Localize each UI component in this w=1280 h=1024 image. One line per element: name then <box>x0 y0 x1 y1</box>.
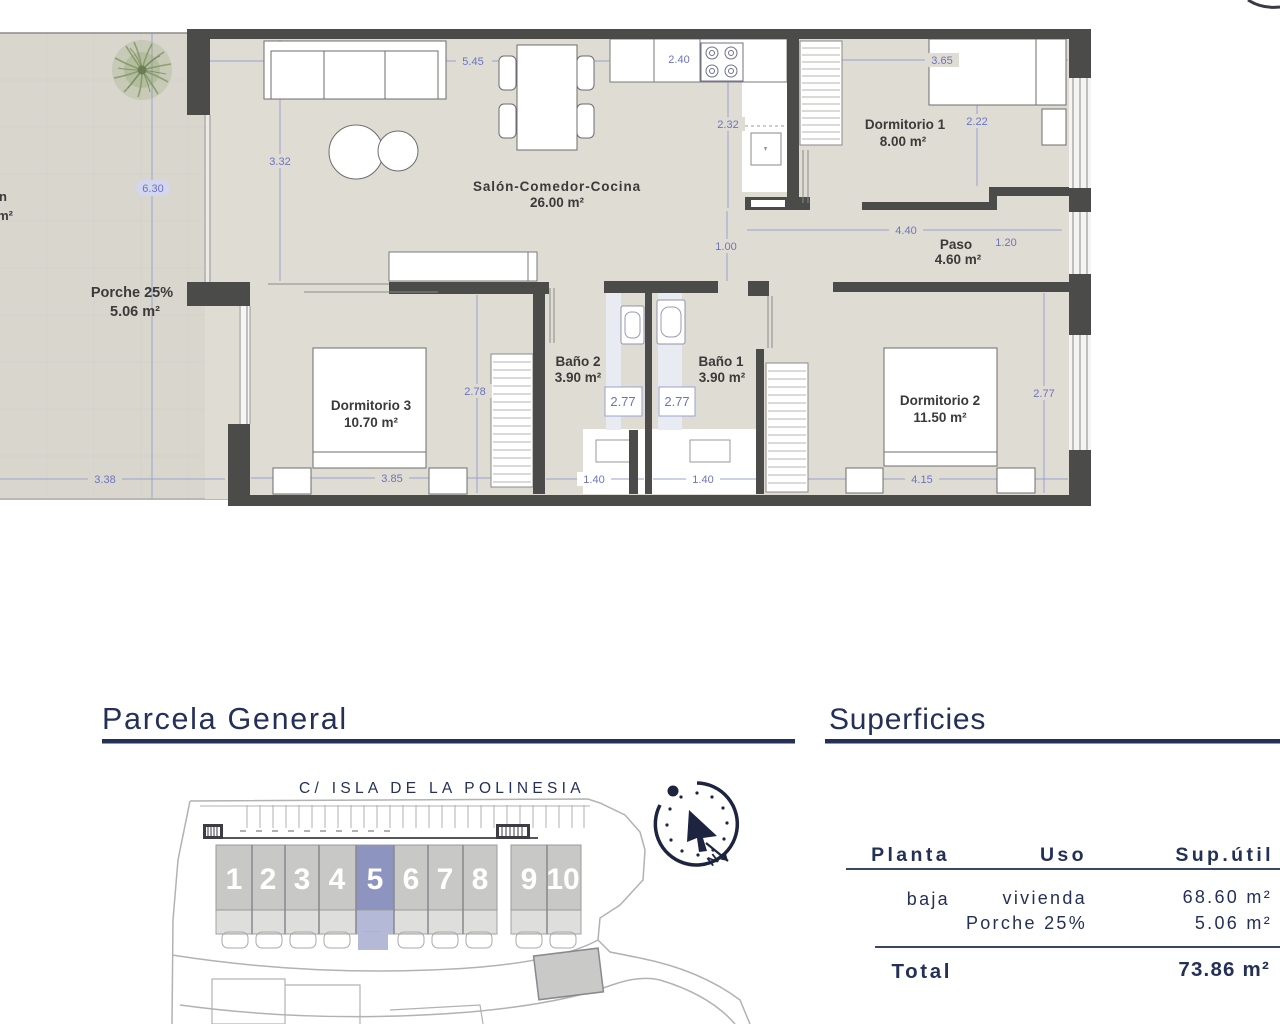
svg-text:4.15: 4.15 <box>911 474 932 486</box>
svg-text:2.77: 2.77 <box>664 394 689 409</box>
svg-text:5: 5 <box>367 863 384 896</box>
svg-text:2.78: 2.78 <box>464 386 485 398</box>
svg-text:5.45: 5.45 <box>462 56 483 68</box>
svg-text:6: 6 <box>403 863 420 896</box>
svg-text:Jardín: Jardín <box>0 189 7 204</box>
svg-text:Salón-Comedor-Cocina: Salón-Comedor-Cocina <box>473 179 641 194</box>
svg-text:4: 4 <box>329 863 346 896</box>
svg-text:2.40: 2.40 <box>668 54 689 66</box>
svg-text:2.77: 2.77 <box>1033 388 1054 400</box>
svg-text:Paso: Paso <box>940 237 972 252</box>
svg-text:6.30: 6.30 <box>142 183 163 195</box>
svg-text:10.70 m²: 10.70 m² <box>344 415 399 430</box>
svg-text:Baño 1: Baño 1 <box>698 354 744 369</box>
svg-text:2.32: 2.32 <box>717 119 738 131</box>
svg-text:3.32: 3.32 <box>269 156 290 168</box>
svg-text:Dormitorio 3: Dormitorio 3 <box>331 398 412 413</box>
svg-text:1.40: 1.40 <box>583 474 604 486</box>
svg-text:26.00 m²: 26.00 m² <box>530 195 585 210</box>
svg-text:1: 1 <box>226 863 243 896</box>
svg-text:3.85: 3.85 <box>381 473 402 485</box>
svg-text:3: 3 <box>294 863 311 896</box>
svg-text:68.60 m²: 68.60 m² <box>1183 887 1272 907</box>
svg-text:3.90 m²: 3.90 m² <box>699 370 746 385</box>
svg-text:vivienda: vivienda <box>1003 888 1087 908</box>
svg-text:C/ ISLA DE LA POLINESIA: C/ ISLA DE LA POLINESIA <box>299 780 585 797</box>
svg-text:3.38: 3.38 <box>94 474 115 486</box>
svg-text:8: 8 <box>472 863 489 896</box>
svg-text:baja: baja <box>907 889 950 909</box>
svg-text:73.86 m²: 73.86 m² <box>1178 958 1270 981</box>
svg-text:Total: Total <box>892 960 952 983</box>
svg-text:Dormitorio 2: Dormitorio 2 <box>900 393 980 408</box>
svg-text:2: 2 <box>260 863 277 896</box>
svg-text:5 m²: 5 m² <box>0 208 14 223</box>
svg-text:Porche 25%: Porche 25% <box>966 913 1087 933</box>
svg-text:Parcela General: Parcela General <box>102 702 348 736</box>
svg-text:Dormitorio 1: Dormitorio 1 <box>865 117 946 132</box>
svg-text:1.00: 1.00 <box>715 241 736 253</box>
svg-text:1.40: 1.40 <box>692 474 713 486</box>
svg-text:2.77: 2.77 <box>610 394 635 409</box>
svg-text:9: 9 <box>521 863 538 896</box>
svg-text:Superficies: Superficies <box>829 703 986 736</box>
svg-text:3.65: 3.65 <box>931 55 952 67</box>
svg-text:4.40: 4.40 <box>895 225 916 237</box>
svg-text:3.90 m²: 3.90 m² <box>555 370 602 385</box>
svg-text:7: 7 <box>437 863 454 896</box>
svg-text:5.06 m²: 5.06 m² <box>1195 913 1272 933</box>
svg-text:10: 10 <box>546 863 579 896</box>
svg-text:5.06 m²: 5.06 m² <box>110 304 160 320</box>
svg-text:4.60 m²: 4.60 m² <box>935 252 982 267</box>
svg-text:2.22: 2.22 <box>966 116 987 128</box>
svg-text:8.00 m²: 8.00 m² <box>880 134 927 149</box>
svg-text:Porche 25%: Porche 25% <box>91 285 173 301</box>
svg-text:Uso: Uso <box>1040 844 1087 866</box>
svg-text:Sup.útil: Sup.útil <box>1175 844 1274 866</box>
svg-text:Planta: Planta <box>871 844 950 866</box>
svg-text:Baño 2: Baño 2 <box>555 354 600 369</box>
svg-text:1.20: 1.20 <box>995 237 1016 249</box>
svg-text:11.50 m²: 11.50 m² <box>913 410 967 425</box>
